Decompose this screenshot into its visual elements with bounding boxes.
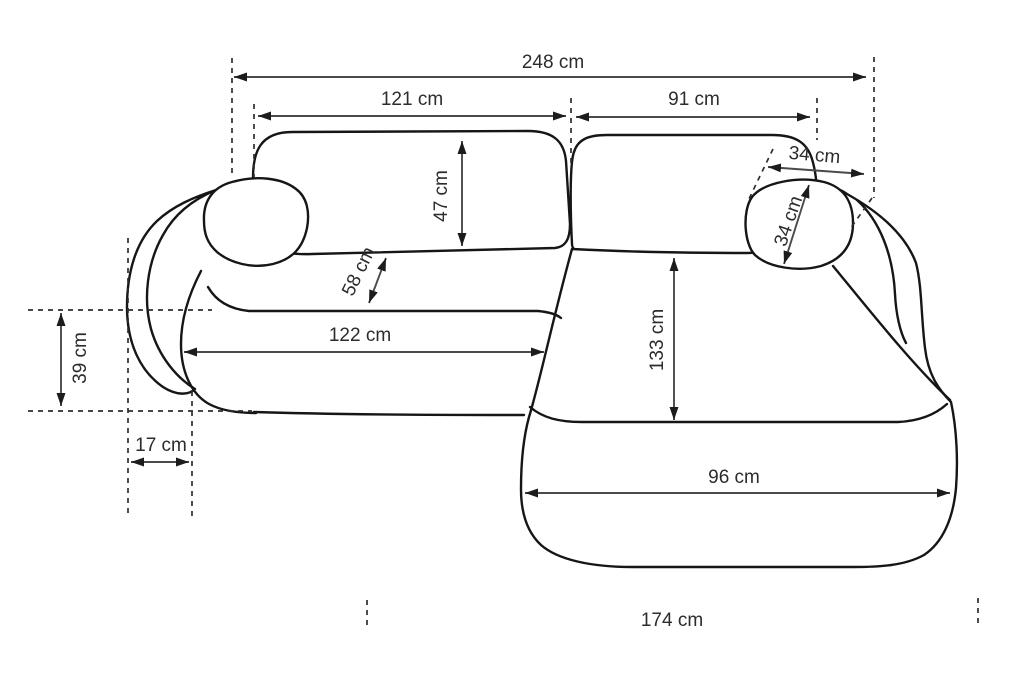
sofa-outline [127, 131, 957, 567]
dim-seat-width-label: 122 cm [329, 325, 391, 346]
dim-right-back-width: 91 cm [576, 89, 810, 117]
dim-right-back-width-label: 91 cm [668, 89, 720, 110]
dim-left-back-width: 121 cm [258, 89, 566, 116]
right-headrest-pillow [746, 180, 853, 269]
dim-armrest-width: 17 cm [131, 435, 189, 462]
dim-seat-width: 122 cm [184, 325, 544, 352]
dim-total-depth: 174 cm [641, 610, 703, 631]
dim-overall-width-label: 248 cm [522, 52, 584, 73]
dim-armrest-depth-label: 39 cm [70, 332, 91, 384]
dim-headrest-span-label: 34 cm [788, 143, 841, 168]
dim-left-back-width-label: 121 cm [381, 89, 443, 110]
sofa-front-bottom-edge [254, 412, 524, 415]
dim-chaise-width-label: 96 cm [708, 467, 760, 488]
diagram-canvas: 248 cm 121 cm 91 cm 47 cm 34 cm 34 cm 58… [0, 0, 1024, 680]
dim-overall-width: 248 cm [234, 52, 866, 77]
dim-back-cushion-depth-label: 47 cm [431, 170, 452, 222]
left-headrest-pillow [204, 178, 308, 266]
sofa-dimension-diagram: 248 cm 121 cm 91 cm 47 cm 34 cm 34 cm 58… [0, 0, 1024, 680]
seat-back-edge-line [208, 287, 561, 318]
left-armrest [127, 190, 216, 394]
dim-armrest-depth: 39 cm [61, 313, 91, 406]
dim-chaise-length-label: 133 cm [647, 309, 668, 371]
dim-armrest-width-label: 17 cm [135, 435, 187, 456]
dim-total-depth-label: 174 cm [641, 610, 703, 631]
